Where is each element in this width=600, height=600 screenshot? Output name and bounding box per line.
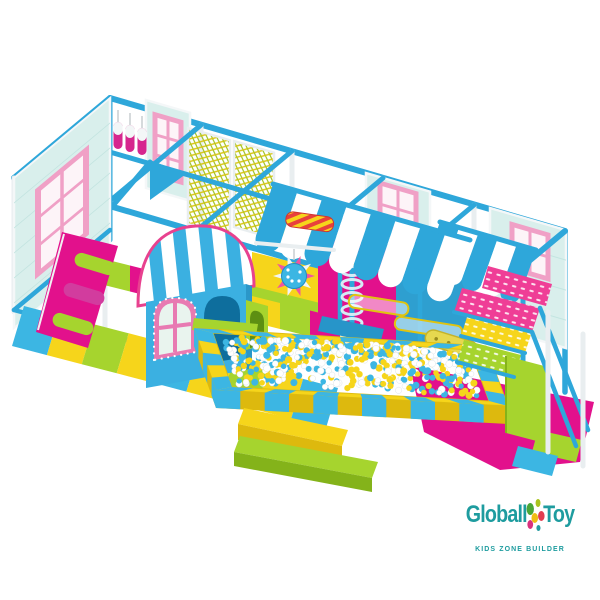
brand-logo: GloballToy KIDS ZONE BUILDER <box>440 498 600 553</box>
ball <box>410 351 417 358</box>
ball <box>380 359 386 365</box>
ball <box>332 339 338 345</box>
ball <box>231 355 237 361</box>
pit-notch <box>216 390 240 409</box>
ball <box>470 389 475 394</box>
ball <box>359 380 366 387</box>
brand-tagline: KIDS ZONE BUILDER <box>440 546 600 553</box>
ball <box>299 342 305 348</box>
ball <box>347 343 354 350</box>
ball <box>281 364 287 370</box>
ball <box>265 373 271 379</box>
ball <box>301 363 306 368</box>
ball <box>320 379 326 385</box>
spiky-ball-dot <box>297 279 300 282</box>
ball <box>253 344 259 350</box>
ball <box>238 355 245 362</box>
ball <box>469 371 474 376</box>
ball <box>276 377 283 384</box>
ball <box>396 359 402 365</box>
product-image: GloballToy KIDS ZONE BUILDER <box>0 0 600 600</box>
awning-scallop <box>354 255 379 280</box>
pit-notch <box>313 395 337 414</box>
ball <box>440 373 446 379</box>
ball <box>243 379 249 385</box>
awning-scallop <box>427 276 452 301</box>
ball <box>237 371 243 377</box>
brand-wordmark: GloballToy <box>454 498 585 531</box>
ball <box>363 351 368 356</box>
ball <box>457 376 463 382</box>
ball <box>421 348 428 355</box>
ball <box>400 367 407 374</box>
ball <box>437 390 442 395</box>
ball <box>365 381 371 387</box>
ball <box>375 378 380 383</box>
punch-bag-cap <box>114 122 123 135</box>
ball <box>247 357 253 363</box>
ball <box>328 384 334 390</box>
ball <box>333 380 340 387</box>
ball <box>236 366 241 371</box>
ball <box>424 367 431 374</box>
ball <box>349 382 355 388</box>
ball <box>277 370 284 377</box>
ball <box>385 368 392 375</box>
brand-dots <box>527 498 543 531</box>
ball <box>223 339 229 345</box>
ball <box>312 340 317 345</box>
ball <box>329 354 335 360</box>
ball <box>459 384 464 389</box>
ball <box>322 384 328 390</box>
ball <box>323 344 330 351</box>
ball <box>241 363 247 369</box>
ball <box>445 376 450 381</box>
spiky-ball-dot <box>290 279 293 282</box>
ball <box>264 365 271 372</box>
ball <box>338 370 345 377</box>
ball <box>329 372 335 378</box>
ball <box>373 345 379 351</box>
page: { "page": { "background": "#ffffff" }, "… <box>0 0 600 600</box>
ball <box>259 380 265 386</box>
ball <box>237 378 242 383</box>
ball <box>440 350 447 357</box>
brand-word-second: Toy <box>543 501 574 528</box>
ball <box>294 355 299 360</box>
ball <box>253 367 259 373</box>
ball <box>286 372 292 378</box>
ball <box>269 378 275 384</box>
awning-scallop <box>256 227 281 252</box>
ball <box>389 358 395 364</box>
ball <box>395 346 400 351</box>
ball <box>310 376 316 382</box>
ball <box>393 352 399 358</box>
ball <box>401 377 406 382</box>
logo-dot <box>537 525 541 531</box>
punch-bag-cap <box>126 125 135 138</box>
ball <box>429 360 436 367</box>
ball <box>248 375 253 380</box>
spiky-ball-dot <box>298 270 301 273</box>
side-panel-green <box>506 356 548 444</box>
pit-notch <box>265 393 289 412</box>
ball <box>263 352 270 359</box>
ball <box>416 361 422 367</box>
ball <box>364 341 371 348</box>
ball <box>318 368 325 375</box>
ball <box>424 374 430 380</box>
ball <box>456 367 463 374</box>
ball <box>307 351 313 357</box>
ball <box>387 351 394 358</box>
ball <box>377 352 383 358</box>
awning-scallop <box>462 271 482 291</box>
ball <box>446 360 453 367</box>
ball <box>421 390 427 396</box>
ball <box>285 356 292 363</box>
ball <box>227 347 233 353</box>
ball <box>462 388 468 394</box>
punch-bag-cap <box>138 128 147 141</box>
ball <box>470 380 477 387</box>
ball <box>384 342 391 349</box>
logo-dot <box>536 499 541 507</box>
ball <box>403 345 410 352</box>
ball <box>251 379 258 386</box>
ball <box>282 337 289 344</box>
spiky-ball-dot <box>286 268 289 271</box>
ball <box>348 367 354 373</box>
ball <box>395 387 401 393</box>
ball <box>258 372 265 379</box>
ball <box>451 354 457 360</box>
ball <box>430 375 436 381</box>
ball <box>269 345 276 352</box>
ball <box>371 363 377 369</box>
ball <box>406 385 412 391</box>
ball <box>272 361 278 367</box>
ball <box>353 345 359 351</box>
ball <box>426 383 432 389</box>
ball <box>241 338 248 345</box>
ball <box>367 375 374 382</box>
ball <box>260 336 267 343</box>
awning-scallop <box>403 269 428 294</box>
ball <box>447 350 453 356</box>
hanging-punch-bags <box>114 110 147 155</box>
pit-notch <box>459 403 483 422</box>
brand-word-first: Globall <box>466 501 527 528</box>
ball <box>409 368 416 375</box>
ball <box>359 348 364 353</box>
ball <box>290 379 297 386</box>
ball <box>268 338 275 345</box>
ball <box>376 365 383 372</box>
ball <box>338 343 344 349</box>
ball <box>316 344 321 349</box>
ball <box>273 351 279 357</box>
ball <box>318 360 325 367</box>
ball <box>308 383 313 388</box>
ball <box>248 369 254 375</box>
ball <box>240 349 246 355</box>
spiky-ball-dot <box>286 275 289 278</box>
ball <box>338 360 345 367</box>
ball <box>380 381 386 387</box>
ball <box>429 388 435 394</box>
spiky-ball-core <box>282 264 307 289</box>
ball <box>387 383 393 389</box>
awning-scallop <box>305 241 330 266</box>
ball <box>356 371 362 377</box>
awning-scallop <box>378 262 403 287</box>
ball <box>449 387 455 393</box>
ball <box>347 359 354 366</box>
pit-notch <box>411 401 435 420</box>
ball <box>387 376 394 383</box>
ball <box>359 356 365 362</box>
pit-notch <box>362 398 386 417</box>
logo-dot <box>528 520 534 529</box>
ball <box>316 353 322 359</box>
ball <box>290 343 295 348</box>
ball <box>229 340 234 345</box>
ball <box>428 353 434 359</box>
ball <box>327 360 332 365</box>
